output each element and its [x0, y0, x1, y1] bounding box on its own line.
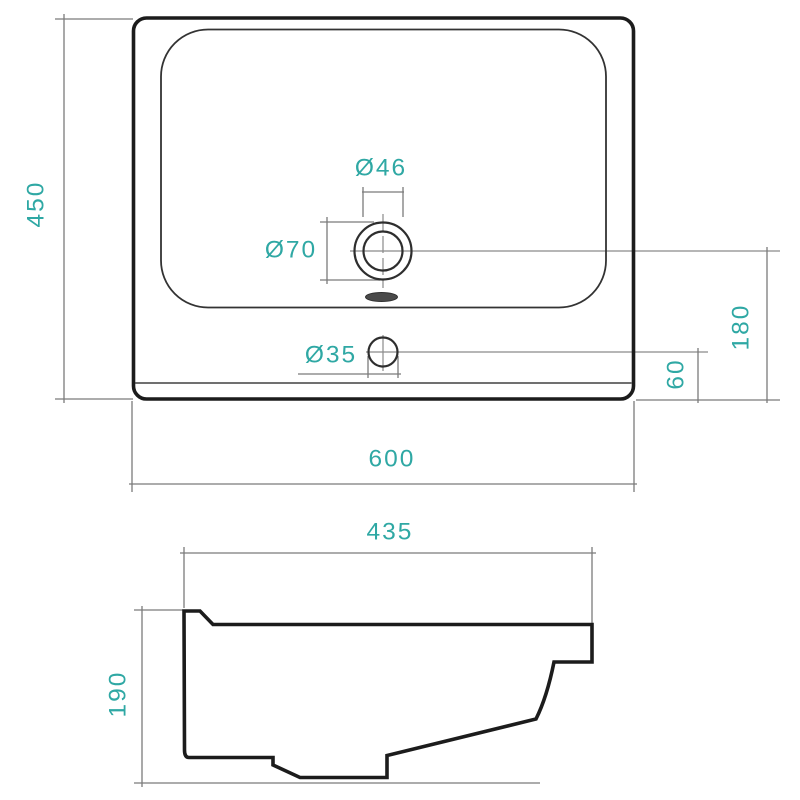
overflow-slot	[366, 293, 398, 302]
label-offset-60: 60	[663, 358, 690, 389]
front-view-dimension-lines	[55, 14, 780, 492]
label-width-600: 600	[369, 446, 416, 473]
label-faucet-recess-d70: Ø70	[265, 237, 317, 264]
label-faucet-hole-d46: Ø46	[355, 155, 407, 182]
label-small-hole-d35: Ø35	[305, 342, 357, 369]
side-view-dimension-lines	[134, 547, 596, 787]
washbasin-dimension-drawing: 450 600 Ø46 Ø70 Ø35 180 60 435 190	[0, 0, 800, 800]
front-view: 450 600 Ø46 Ø70 Ø35 180 60	[23, 14, 781, 492]
label-side-height-190: 190	[105, 671, 132, 718]
drawing-page: 450 600 Ø46 Ø70 Ø35 180 60 435 190	[0, 0, 800, 800]
side-view: 435 190	[105, 519, 597, 788]
label-depth-450: 450	[23, 181, 50, 228]
basin-side-profile	[184, 611, 592, 778]
label-side-depth-435: 435	[367, 519, 414, 546]
label-offset-180: 180	[728, 304, 755, 351]
